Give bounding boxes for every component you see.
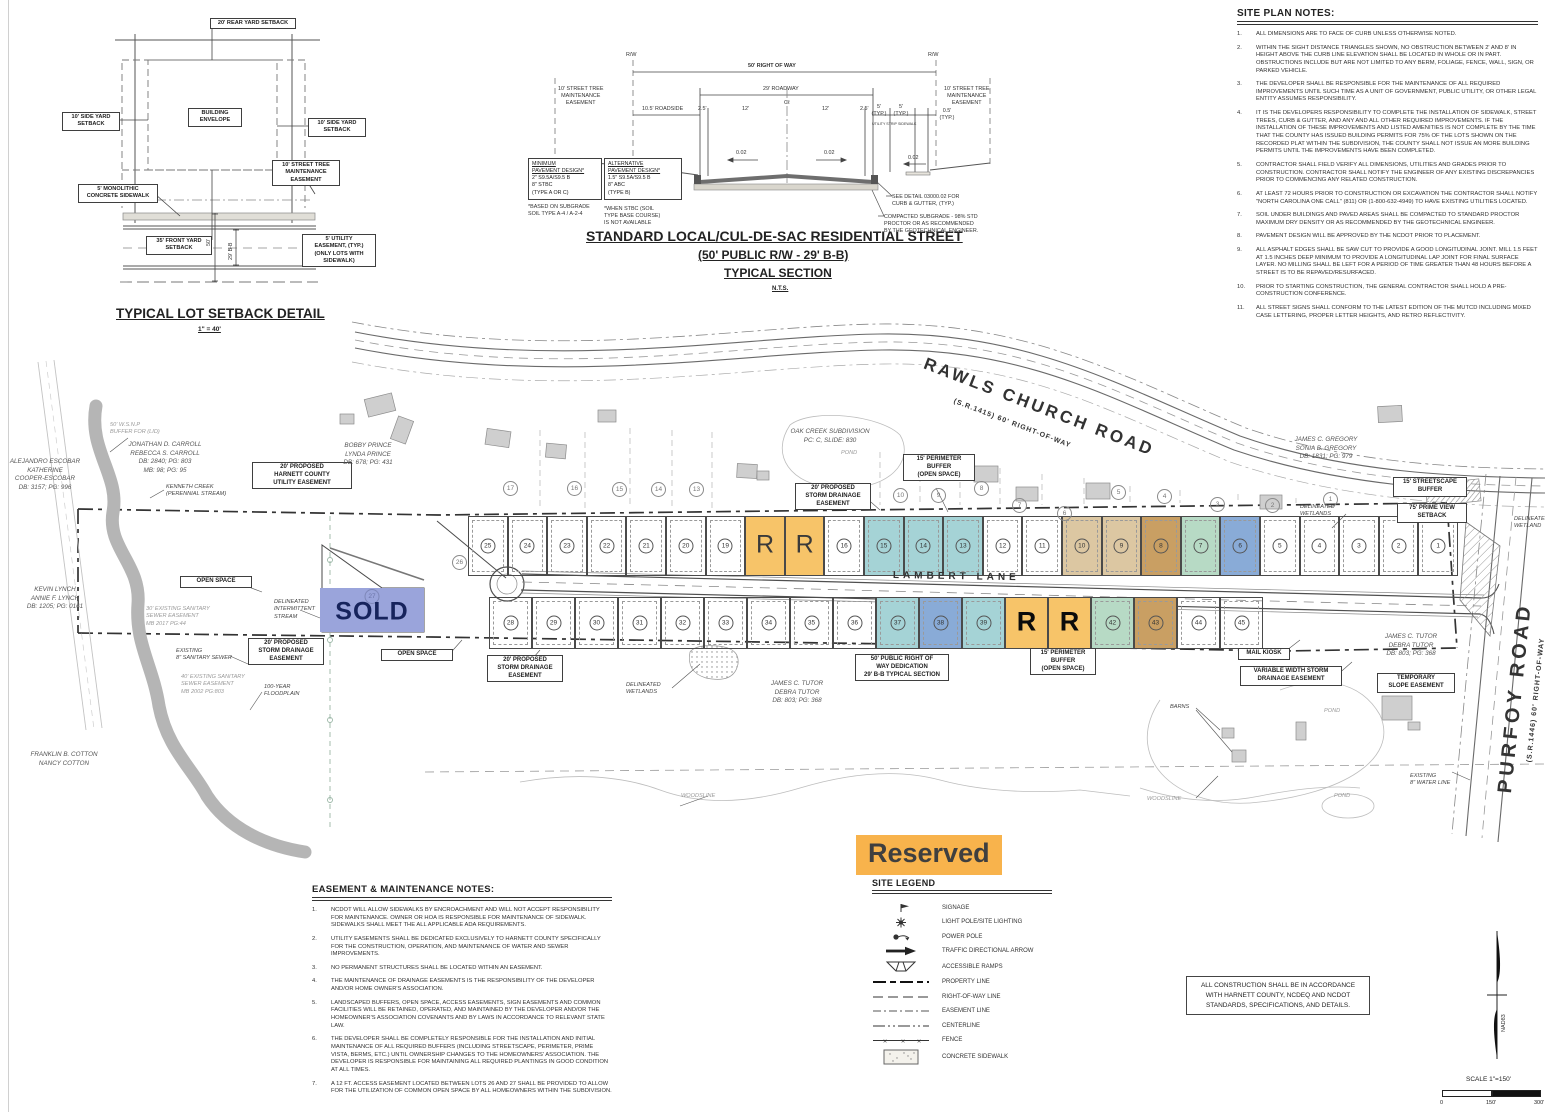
plan-callout-box: OPEN SPACE <box>180 576 252 588</box>
lot-number: 34 <box>761 616 776 631</box>
lot-number: 13 <box>955 539 970 554</box>
lot: 19 <box>706 516 746 576</box>
pavement-line: (TYPE B) <box>608 190 678 197</box>
lot-number: 10 <box>1074 539 1089 554</box>
lot: 35 <box>790 597 833 649</box>
lot-number: 16 <box>837 539 852 554</box>
lot: 31 <box>618 597 661 649</box>
dim-5-utility: 5' (TYP.) <box>871 104 887 118</box>
plan-callout-box: TEMPORARY SLOPE EASEMENT <box>1377 673 1455 693</box>
lot: 7 <box>1181 516 1221 576</box>
plan-label: FRANKLIN B. COTTON NANCY COTTON <box>22 751 106 768</box>
reserved-lot-label: R <box>1060 606 1080 637</box>
neighbor-lot-number: 4 <box>1157 489 1172 504</box>
plan-callout-box: 15' PERIMETER BUFFER (OPEN SPACE) <box>1030 648 1096 675</box>
plan-label: WOODSLINE <box>681 793 715 800</box>
lot: 25 <box>468 516 508 576</box>
neighbor-lot-number: 26 <box>452 555 467 570</box>
lot: 43 <box>1134 597 1177 649</box>
neighbor-lot-number: 16 <box>567 481 582 496</box>
lot-number: 39 <box>976 616 991 631</box>
setback-detail-title: TYPICAL LOT SETBACK DETAIL <box>116 306 325 321</box>
pavement-line: 2" S9.5A/S9.5 B <box>532 175 598 182</box>
plan-label: JAMES C. TUTOR DEBRA TUTOR DB: 803; PG: … <box>762 680 832 706</box>
lot: 32 <box>661 597 704 649</box>
plan-callout-box: 20' PROPOSED STORM DRAINAGE EASEMENT <box>795 483 871 510</box>
lot: 20 <box>666 516 706 576</box>
pavement-line: PAVEMENT DESIGN* <box>608 168 678 175</box>
label-monolithic-sidewalk: 5' MONOLITHIC CONCRETE SIDEWALK <box>78 184 158 203</box>
reserved-lot-label: R <box>756 530 774 559</box>
lot-number: 22 <box>599 539 614 554</box>
neighbor-lot-number: 15 <box>612 482 627 497</box>
plan-label: EXISTING 8" WATER LINE <box>1410 773 1450 788</box>
lot: 29 <box>532 597 575 649</box>
slope-right: 0.02 <box>824 150 835 157</box>
sold-label: SOLD <box>335 598 408 627</box>
rw-left: R/W <box>626 52 636 59</box>
plan-callout-box: MAIL KIOSK <box>1238 648 1290 660</box>
plan-label: POND <box>841 450 857 457</box>
lot: 1 <box>1418 516 1458 576</box>
neighbor-lot-number: 14 <box>651 482 666 497</box>
lot-number: 38 <box>933 616 948 631</box>
plan-label: RAWLS CHURCH ROAD <box>921 354 1157 461</box>
lot-number: 7 <box>1193 539 1208 554</box>
lot: R <box>1048 597 1091 649</box>
plan-label: POND <box>1334 793 1350 800</box>
lot-number: 44 <box>1191 616 1206 631</box>
minimum-pavement-box: MINIMUMPAVEMENT DESIGN*2" S9.5A/S9.5 B8"… <box>528 158 602 200</box>
plan-label: OAK CREEK SUBDIVISION PC: C, SLIDE: 830 <box>783 428 877 445</box>
neighbor-lot-number: 3 <box>1210 497 1225 512</box>
neighbor-lot-number: 13 <box>689 482 704 497</box>
dim-50: 50' <box>206 239 213 246</box>
plan-label: 30' EXISTING SANITARY SEWER EASEMENT MB … <box>146 606 210 628</box>
lot-number: 32 <box>675 616 690 631</box>
section-title-2: (50' PUBLIC R/W - 29' B-B) <box>698 248 848 262</box>
pavement-line: 8" ABC <box>608 182 678 189</box>
plan-label: DELINEATED WETLAND <box>1514 516 1545 531</box>
lot: 11 <box>1022 516 1062 576</box>
plan-label: JAMES C. TUTOR DEBRA TUTOR DB: 803; PG: … <box>1376 633 1446 659</box>
lot-number: 5 <box>1272 539 1287 554</box>
north-datum-label: NAD83 <box>1501 1014 1507 1032</box>
reserved-label: Reserved <box>856 835 1002 875</box>
lot: 44 <box>1177 597 1220 649</box>
dim-29-bb: 29' B-B <box>228 242 235 260</box>
pavement-line: ALTERNATIVE <box>608 161 678 168</box>
dim-roadway: 29' ROADWAY <box>763 86 799 93</box>
section-title-1: STANDARD LOCAL/CUL-DE-SAC RESIDENTIAL ST… <box>586 228 963 244</box>
lot-number: 8 <box>1153 539 1168 554</box>
lot: 14 <box>904 516 944 576</box>
dim-25a: 2.5' <box>698 106 707 113</box>
lot: 8 <box>1141 516 1181 576</box>
reserved-lot-label: R <box>1017 606 1037 637</box>
lot-number: 45 <box>1234 616 1249 631</box>
plan-callout-box: 15' STREETSCAPE BUFFER <box>1393 477 1467 497</box>
lot: 21 <box>626 516 666 576</box>
lot: R <box>785 516 825 576</box>
lot-number: 20 <box>678 539 693 554</box>
section-title-3: TYPICAL SECTION <box>724 266 832 280</box>
lot: 45 <box>1220 597 1263 649</box>
lot-number: 37 <box>890 616 905 631</box>
slope-sidewalk: 0.02 <box>908 155 919 162</box>
dim-25b: 2.5' <box>860 106 869 113</box>
pavement-line: PAVEMENT DESIGN* <box>532 168 598 175</box>
plan-callout-box: 20' PROPOSED STORM DRAINAGE EASEMENT <box>248 638 324 665</box>
sidewalk-label: SIDEWALK <box>898 122 916 127</box>
lot-number: 36 <box>847 616 862 631</box>
lot-number: 42 <box>1105 616 1120 631</box>
lot-number: 12 <box>995 539 1010 554</box>
dim-12a: 12' <box>742 106 749 113</box>
lot-number: 23 <box>559 539 574 554</box>
lot: 28 <box>489 597 532 649</box>
plan-label: BARNS <box>1170 704 1189 711</box>
lot-number: 33 <box>718 616 733 631</box>
plan-label: LAMBERT LANE <box>893 570 1020 583</box>
plan-callout-box: VARIABLE WIDTH STORM DRAINAGE EASEMENT <box>1240 666 1342 686</box>
plan-label: 40' EXISTING SANITARY SEWER EASEMENT MB … <box>181 674 245 696</box>
plan-callout-box: OPEN SPACE <box>381 649 453 661</box>
lot-number: 29 <box>546 616 561 631</box>
lot: 30 <box>575 597 618 649</box>
neighbor-lot-number: 2 <box>1265 498 1280 513</box>
plan-label: 100-YEAR FLOODPLAIN <box>264 684 299 699</box>
plan-label: ALEJANDRO ESCOBAR KATHERINE COOPER-ESCOB… <box>4 458 86 492</box>
dim-05: 0.5' (TYP.) <box>938 108 956 122</box>
lot-number: 21 <box>639 539 654 554</box>
dim-12b: 12' <box>822 106 829 113</box>
label-front-setback: 35' FRONT YARD SETBACK <box>146 236 212 255</box>
plan-label: PURFOY ROAD <box>1494 602 1537 795</box>
lot-number: 43 <box>1148 616 1163 631</box>
neighbor-lot-number: 7 <box>1012 498 1027 513</box>
lot-number: 24 <box>520 539 535 554</box>
maint-easement-right: 10' STREET TREE MAINTENANCE EASEMENT <box>944 86 989 107</box>
pavement-line: (TYPE A OR C) <box>532 190 598 197</box>
label-side-setback-right: 10' SIDE YARD SETBACK <box>308 118 366 137</box>
dim-5-sidewalk: 5' (TYP.) <box>893 104 909 118</box>
section-nts: N.T.S. <box>772 286 788 292</box>
lot: 39 <box>962 597 1005 649</box>
plan-label: WOODSLINE <box>1147 796 1181 803</box>
lot-number: 3 <box>1351 539 1366 554</box>
label-rear-setback: 20' REAR YARD SETBACK <box>210 18 296 29</box>
lot-number: 31 <box>632 616 647 631</box>
lot: 33 <box>704 597 747 649</box>
plan-label: POND <box>1324 708 1340 715</box>
lot: 6 <box>1220 516 1260 576</box>
dim-roadside: 10.5' ROADSIDE <box>642 106 683 113</box>
plan-label: DELINEATED WETLANDS <box>626 682 661 697</box>
lot: 38 <box>919 597 962 649</box>
lot: R <box>1005 597 1048 649</box>
dim-centerline: Cℓ <box>784 100 790 107</box>
pavement-line: MINIMUM <box>532 161 598 168</box>
neighbor-lot-number: 5 <box>1111 485 1126 500</box>
lot-number: 14 <box>916 539 931 554</box>
site-plan-sheet: 20' REAR YARD SETBACK 10' SIDE YARD SETB… <box>0 0 1545 1112</box>
lot: 34 <box>747 597 790 649</box>
lot: 3 <box>1339 516 1379 576</box>
lot-number: 25 <box>480 539 495 554</box>
lot: 10 <box>1062 516 1102 576</box>
lot-number: 6 <box>1233 539 1248 554</box>
label-utility-easement: 5' UTILITY EASEMENT, (TYP.) (ONLY LOTS W… <box>302 234 376 267</box>
rw-right: R/W <box>928 52 938 59</box>
plan-label: 50' W.S.N.P BUFFER FOR (LID) <box>110 422 160 437</box>
plan-label: JAMES C. GREGORY SONIA B. GREGORY DB: 18… <box>1286 436 1366 462</box>
sold-lot: 27 SOLD <box>320 588 424 632</box>
lot: 12 <box>983 516 1023 576</box>
lot-number: 9 <box>1114 539 1129 554</box>
lot-number: 4 <box>1312 539 1327 554</box>
plan-callout-box: 75' PRIME VIEW SETBACK <box>1397 503 1467 523</box>
lot: 5 <box>1260 516 1300 576</box>
lot-number: 2 <box>1391 539 1406 554</box>
lot: 36 <box>833 597 876 649</box>
plan-label: EXISTING 8" SANITARY SEWER <box>176 648 232 663</box>
dim-right-of-way: 50' RIGHT OF WAY <box>748 63 796 70</box>
neighbor-lot-number: 8 <box>974 481 989 496</box>
lot-number: 30 <box>589 616 604 631</box>
lot-number: 35 <box>804 616 819 631</box>
maint-easement-left: 10' STREET TREE MAINTENANCE EASEMENT <box>558 86 603 107</box>
neighbor-lot-number: 6 <box>1057 506 1072 521</box>
lot-number: 11 <box>1035 539 1050 554</box>
label-street-tree-easement: 10' STREET TREE MAINTENANCE EASEMENT <box>272 160 340 186</box>
lot: 2 <box>1379 516 1419 576</box>
label-side-setback-left: 10' SIDE YARD SETBACK <box>62 112 120 131</box>
pavement-line: 8" STBC <box>532 182 598 189</box>
plan-label: JONATHAN D. CARROLL REBECCA S. CARROLL D… <box>120 441 210 475</box>
lot: R <box>745 516 785 576</box>
lot: 16 <box>824 516 864 576</box>
plan-label: BOBBY PRINCE LYNDA PRINCE DB: 678; PG: 4… <box>336 442 400 468</box>
lot: 42 <box>1091 597 1134 649</box>
alternative-pavement-box: ALTERNATIVEPAVEMENT DESIGN*1.5" S9.5A/S9… <box>604 158 682 200</box>
curb-gutter-callout: SEE DETAIL 03000.02 FOR CURB & GUTTER, (… <box>892 194 959 208</box>
pavement-line: 1.5" S9.5A/S9.5 B <box>608 175 678 182</box>
plan-label: DELINEATED INTERMITTENT STREAM <box>274 599 315 621</box>
setback-detail-scale: 1" = 40' <box>198 326 221 333</box>
lot: 9 <box>1102 516 1142 576</box>
plan-label: DELINEATED WETLANDS <box>1300 504 1335 519</box>
plan-label: KENNETH CREEK (PERENNIAL STREAM) <box>166 484 226 499</box>
plan-callout-box: 15' PERIMETER BUFFER (OPEN SPACE) <box>903 454 975 481</box>
neighbor-lot-number: 9 <box>931 488 946 503</box>
neighbor-lot-number: 10 <box>893 488 908 503</box>
alternative-pavement-footnote: *WHEN STBC (SOIL TYPE BASE COURSE) IS NO… <box>604 206 660 227</box>
plan-callout-box: 20' PROPOSED STORM DRAINAGE EASEMENT <box>487 655 563 682</box>
lot-number: 1 <box>1431 539 1446 554</box>
lot: 22 <box>587 516 627 576</box>
neighbor-lot-number: 17 <box>503 481 518 496</box>
lot-number: 15 <box>876 539 891 554</box>
plan-callout-box: 50' PUBLIC RIGHT OF WAY DEDICATION 29' B… <box>855 654 949 681</box>
lot-number: 19 <box>718 539 733 554</box>
lot: 24 <box>508 516 548 576</box>
utility-strip-label: UTILITY STRIP <box>872 122 897 127</box>
lot: 13 <box>943 516 983 576</box>
plan-label: KEVIN LYNCH ANNIE F. LYNCH DB: 1205; PG:… <box>16 586 94 612</box>
lot: 23 <box>547 516 587 576</box>
reserved-lot-label: R <box>796 530 814 559</box>
label-building-envelope: BUILDING ENVELOPE <box>188 108 242 127</box>
lot: 15 <box>864 516 904 576</box>
slope-left: 0.02 <box>736 150 747 157</box>
lot-number: 28 <box>503 616 518 631</box>
minimum-pavement-footnote: *BASED ON SUBGRADE SOIL TYPE A-4 / A-2-4 <box>528 204 590 218</box>
lot: 37 <box>876 597 919 649</box>
lot: 4 <box>1300 516 1340 576</box>
